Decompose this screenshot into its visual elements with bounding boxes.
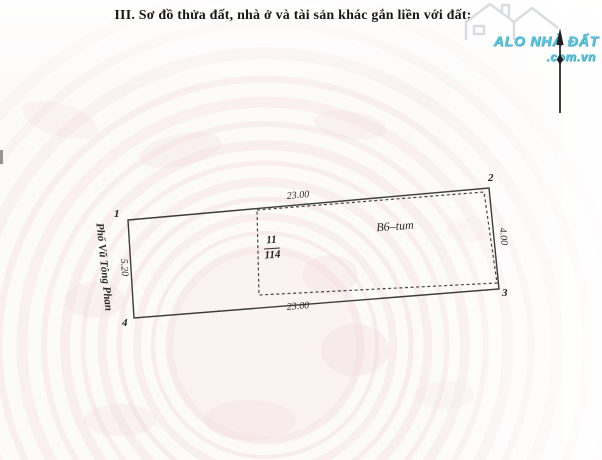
certificate-page: III. Sơ đồ thửa đất, nhà ở và tài sản kh… bbox=[0, 0, 602, 460]
corner-label-2: 2 bbox=[488, 172, 494, 184]
corner-label-1: 1 bbox=[114, 208, 120, 220]
brand-name: ALO NHÀ ĐẤT bbox=[494, 33, 599, 49]
plot-number: 11 bbox=[263, 233, 280, 249]
corner-label-4: 4 bbox=[122, 317, 128, 329]
brand-logo: ALO NHÀ ĐẤT .com.vn bbox=[462, 0, 602, 78]
plot-area: 114 bbox=[257, 248, 288, 263]
corner-label-3: 3 bbox=[502, 287, 508, 299]
north-arrow-icon bbox=[549, 26, 571, 118]
section-title: III. Sơ đồ thửa đất, nhà ở và tài sản kh… bbox=[88, 8, 498, 24]
parcel-boundary bbox=[128, 188, 499, 318]
building-footprint bbox=[257, 192, 497, 295]
plot-number-area: 11 114 bbox=[256, 233, 288, 262]
